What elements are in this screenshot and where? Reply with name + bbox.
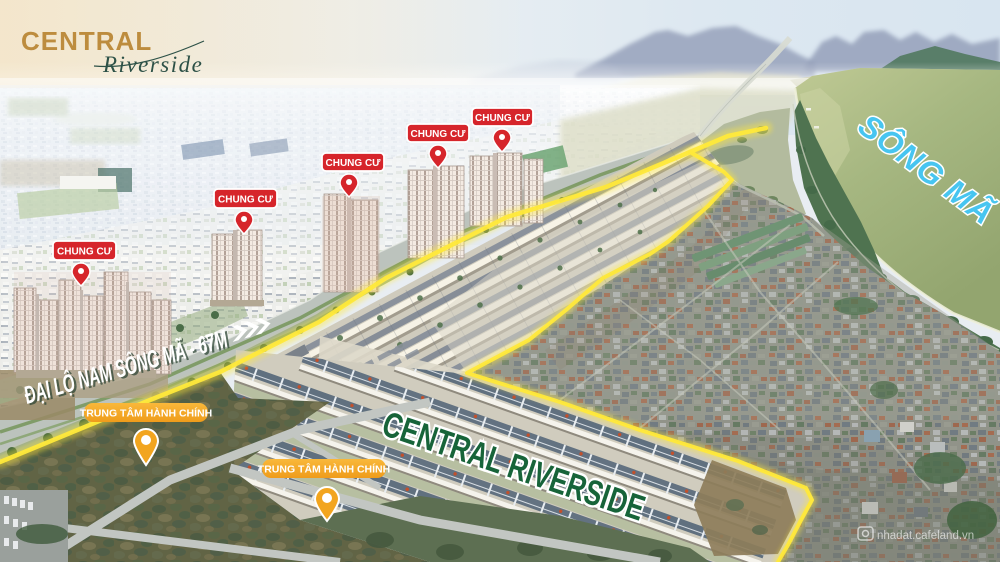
svg-text:CHUNG CƯ: CHUNG CƯ [475,113,531,124]
svg-text:CHUNG CƯ: CHUNG CƯ [326,158,382,169]
svg-text:CHUNG CƯ: CHUNG CƯ [57,247,113,258]
svg-text:CHUNG CƯ: CHUNG CƯ [411,129,467,140]
svg-text:TRUNG TÂM HÀNH CHÍNH: TRUNG TÂM HÀNH CHÍNH [258,463,390,476]
svg-text:nhadat.cafeland.vn: nhadat.cafeland.vn [877,530,974,542]
svg-text:CHUNG CƯ: CHUNG CƯ [218,195,274,206]
svg-text:Riverside: Riverside [102,52,203,77]
svg-text:TRUNG TÂM HÀNH CHÍNH: TRUNG TÂM HÀNH CHÍNH [80,407,212,420]
